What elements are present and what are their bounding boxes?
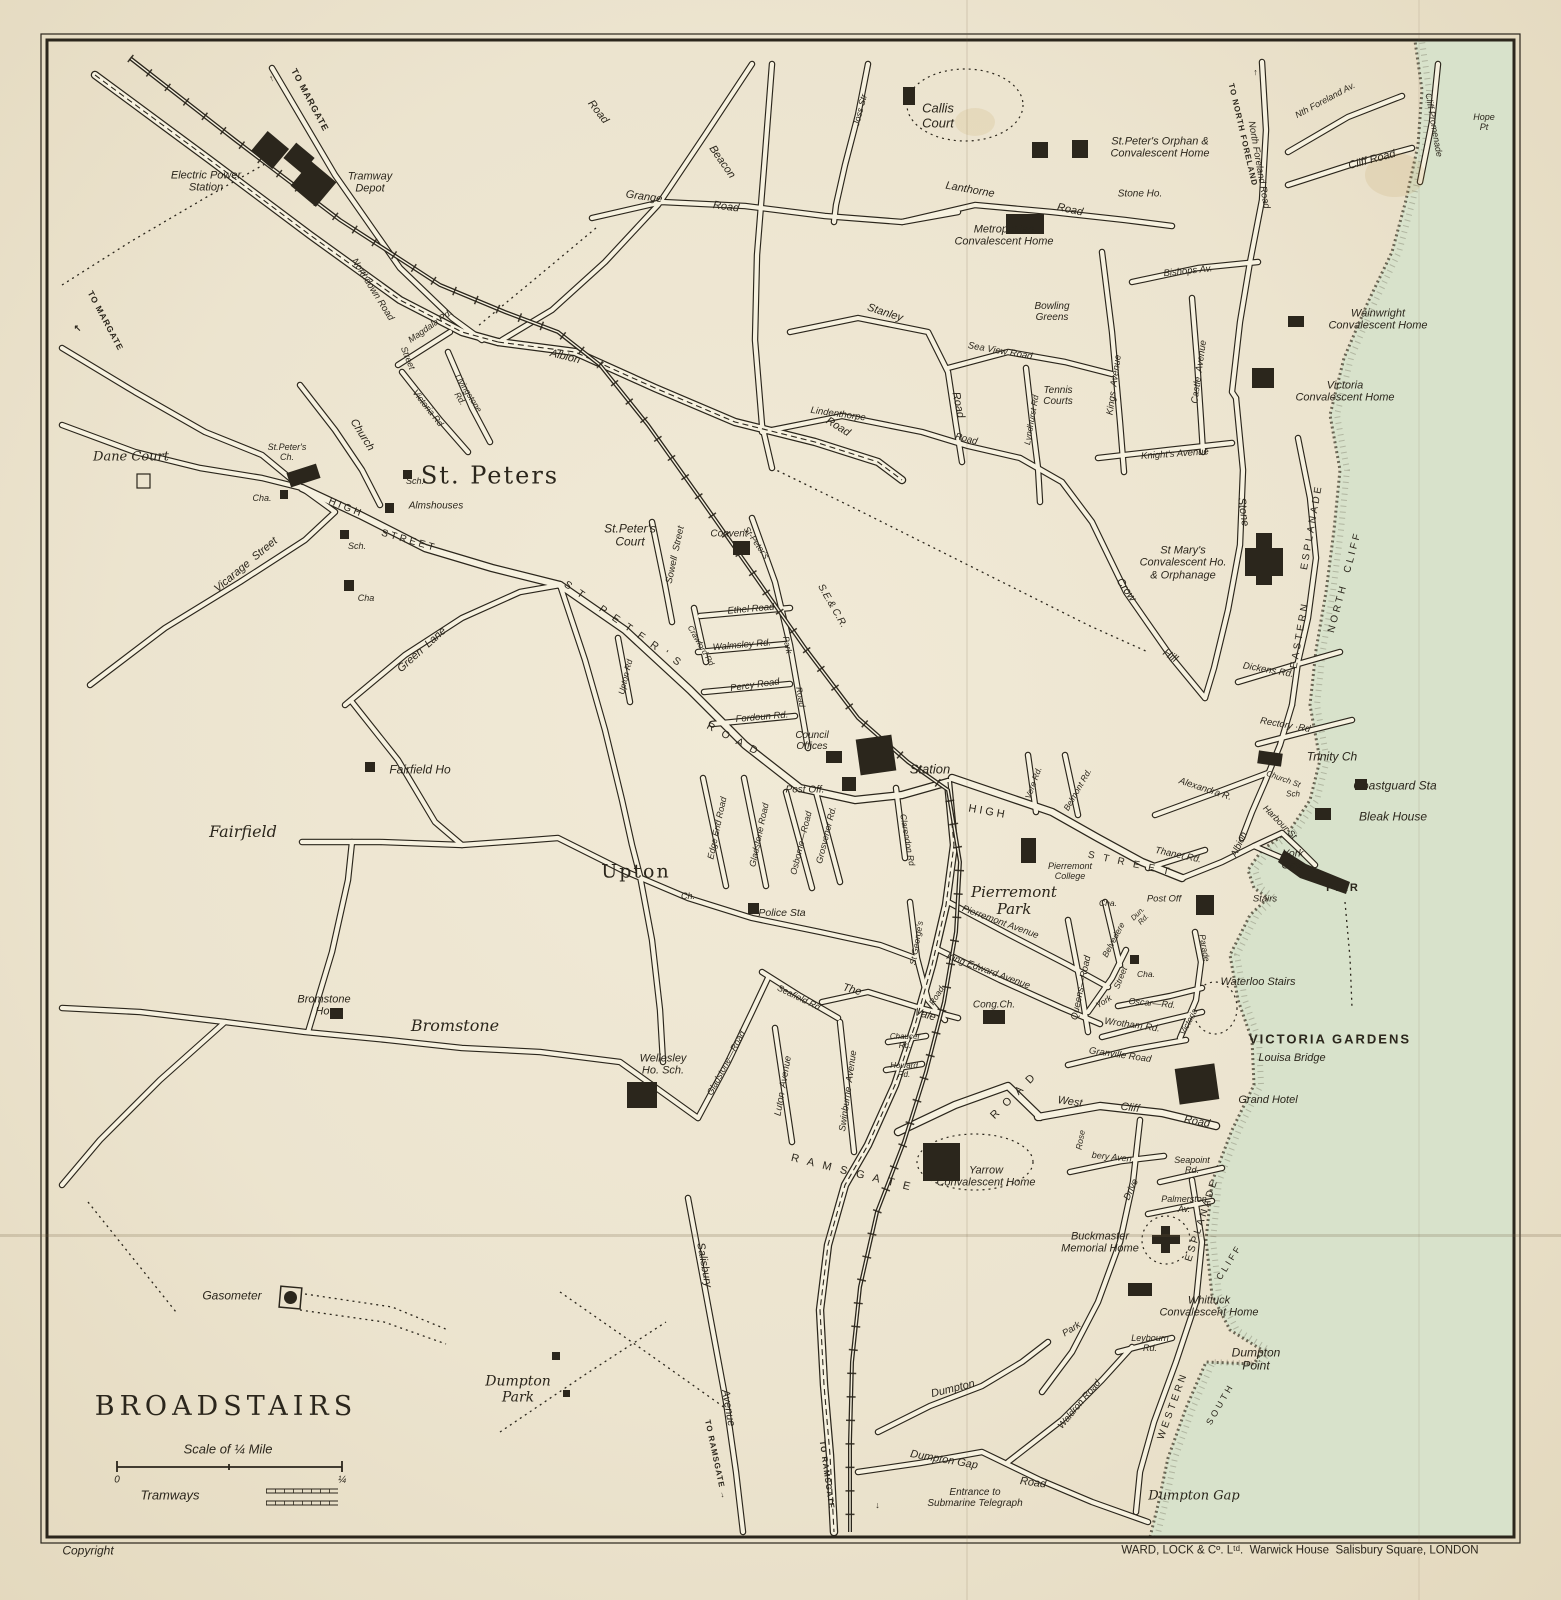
label-beacon: Beacon: [706, 143, 737, 181]
label-albion: Albion: [1230, 831, 1251, 859]
label-victoria: Victoria: [1178, 1007, 1200, 1036]
label-grange: Grange: [625, 188, 663, 205]
label-knight-s-avenue: Knight's Avenue: [1141, 447, 1209, 462]
label-stone-ho: Stone Ho.: [1118, 188, 1162, 199]
label-albion: Albion: [549, 347, 582, 366]
label-church: Church: [347, 417, 376, 454]
label-to-ramsgate: TO RAMSGATE: [817, 1440, 836, 1510]
label-hill: Hill: [1160, 647, 1180, 666]
label-west: West: [1057, 1094, 1083, 1110]
label-queens-road: Queens—Road: [1070, 955, 1094, 1021]
label-whittuck-convalescent-home: Whittuck Convalescent Home: [1159, 1295, 1258, 1320]
label-bishops-av: Bishops Av.: [1163, 264, 1213, 280]
label-street: Street: [399, 345, 417, 371]
label-: ↑: [1253, 67, 1259, 77]
label-lanthorne: Lanthorne: [945, 180, 996, 201]
label-upton: Upton: [601, 861, 671, 882]
label-leybourn-rd: Leybourn Rd.: [1131, 1333, 1169, 1353]
label-police-sta: Police Sta: [758, 908, 805, 920]
label-yarrow-convalescent-home: Yarrow Convalescent Home: [936, 1165, 1035, 1190]
label-: ↑: [268, 72, 277, 83]
label-south: SOUTH: [1204, 1381, 1236, 1426]
label-livingstone-rd: Livingstone Rd.: [445, 373, 484, 420]
label-pier: PIER: [1326, 882, 1360, 894]
label-swinburne-avenue: Swinburne Avenue: [838, 1050, 860, 1133]
label-cliff-promenade: Cliff Promenade: [1423, 92, 1444, 157]
label-broadstairs: BROADSTAIRS: [95, 1392, 357, 1422]
label-thanet-rd: Thanet Rd.: [1154, 846, 1202, 866]
label-road: Road: [954, 432, 979, 448]
label-north-cliff: NORTH CLIFF: [1326, 530, 1364, 634]
label-rectory-rd: Rectory ·Rd: [1259, 716, 1311, 735]
label-almshouses: Almshouses: [409, 500, 463, 511]
label-percy-road: Percy Road: [730, 677, 781, 694]
label-avenue: Avenue: [719, 1389, 738, 1428]
label-fairfield: Fairfield: [209, 823, 277, 841]
label-scale-of-mile: Scale of ¼ Mile: [184, 1443, 273, 1458]
label-walmsley-rd: Walmsley Rd.: [712, 638, 771, 654]
label-dumpton-park: Dumpton Park: [485, 1374, 551, 1405]
map-sheet: ↑TO MARGATEElectric Power StationTramway…: [0, 0, 1561, 1600]
label-r-o-a-d: R O A D: [988, 1070, 1040, 1122]
label-grand-hotel: Grand Hotel: [1238, 1094, 1297, 1106]
label-vicarage-street: Vicarage Street: [212, 535, 280, 595]
label-road: Road: [928, 985, 947, 1007]
label-ch: Ch.: [681, 891, 695, 901]
label-ethel-road: Ethel Road: [727, 603, 775, 618]
label-dumpton: Dumpton: [930, 1378, 976, 1401]
label-grosvenor-rd: Grosvenor Rd.: [814, 805, 838, 864]
label-ward-lock-c-l-warwick-house-salisbury-square-london: WARD, LOCK & Cº. Lᵗᵈ. Warwick House Sali…: [1121, 1545, 1478, 1558]
label-high: HIGH: [327, 496, 365, 520]
label-cha: Cha.: [1099, 899, 1117, 909]
label-tramways: Tramways: [141, 1489, 200, 1504]
label-harbour-st: Harbour St: [1261, 803, 1299, 841]
label-street: Street: [1112, 966, 1129, 991]
label-road: Road: [1056, 201, 1084, 219]
label-vere-rd: Vere Rd.: [1024, 766, 1044, 800]
label-tramway-depot: Tramway Depot: [348, 171, 392, 196]
label-r-a-m-s-g-a-t-e: R A M S G A T E: [790, 1152, 915, 1194]
label-chaucer-rd: Chaucer Rd.: [890, 1033, 920, 1051]
label-trinity-ch: Trinity Ch: [1307, 750, 1357, 763]
label-bromstone: Bromstone: [411, 1017, 499, 1035]
label-nth-foreland-av: Nth Foreland Av.: [1293, 80, 1356, 120]
label-sch: Sch: [1286, 791, 1300, 800]
label-st-peter-s-orphan-convalescent-home: St.Peter's Orphan & Convalescent Home: [1110, 136, 1209, 161]
label-esplanade: ESPLANADE: [1299, 483, 1325, 571]
label-dickens-rd: Dickens Rd.: [1242, 661, 1294, 680]
label-dumpton-point: Dumpton Point: [1232, 1347, 1281, 1374]
label-buckmaster-memorial-home: Buckmaster Memorial Home: [1061, 1231, 1139, 1256]
label-louisa-bridge: Louisa Bridge: [1258, 1052, 1325, 1064]
label-cliff-road: Cliff Road: [1347, 148, 1397, 172]
label-upton-rd: Upton Rd: [617, 658, 635, 695]
label-: ↖: [74, 323, 83, 333]
label-bleak-house: Bleak House: [1359, 810, 1427, 823]
label-joss-str: Joss Str: [851, 93, 869, 127]
label-cha: Cha.: [1137, 970, 1155, 980]
map-labels: ↑TO MARGATEElectric Power StationTramway…: [0, 0, 1561, 1600]
label-bowling-greens: Bowling Greens: [1034, 301, 1069, 323]
label-coastguard-sta: Coastguard Sta: [1353, 779, 1436, 792]
label-cha: Cha.: [252, 493, 271, 503]
label-s-e-c-r: S.E.& C.R.: [815, 582, 849, 629]
label-waterloo-stairs: Waterloo Stairs: [1221, 976, 1296, 988]
label-crow: Crow: [1114, 576, 1139, 604]
label-drive: Drive: [1123, 1178, 1142, 1203]
label-cliff: CLIFF: [1214, 1242, 1244, 1281]
label-r-o-a-d: R O A D: [704, 721, 762, 759]
label-0: 0: [114, 1474, 120, 1485]
label-sowell-street: Sowell Street: [665, 525, 688, 585]
label-to-ramsgate: TO RAMSGATE →: [702, 1419, 728, 1501]
label-bery-aven: bery Aven.: [1091, 1150, 1134, 1164]
label-road: Road: [1019, 1475, 1047, 1491]
label-seapoint-rd: Seapoint Rd.: [1174, 1155, 1210, 1175]
label-parade: Parade: [1197, 934, 1211, 963]
label-rose: Rose: [1075, 1129, 1088, 1150]
label-metropolitan-convalescent-home: Metropolitan Convalescent Home: [954, 224, 1053, 249]
label-green-lane: Green Lane: [395, 625, 449, 675]
label-alexandra-r: Alexandra R.: [1177, 776, 1233, 803]
label-copyright: Copyright: [62, 1544, 113, 1557]
label-st-mary-s-convalescent-ho-orphanage: St Mary's Convalescent Ho. & Orphanage: [1140, 545, 1227, 582]
label-wrotham-rd: Wrotham Rd.: [1104, 1017, 1161, 1035]
label-post-off: Post Off.: [786, 784, 825, 795]
label-esplanade: ESPLANADE: [1183, 1177, 1221, 1263]
label-victoria-rd: Victoria Rd: [411, 388, 446, 429]
label-electric-power-station: Electric Power Station: [171, 170, 241, 195]
label-victoria-convalescent-home: Victoria Convalescent Home: [1295, 380, 1394, 405]
label-cliff: Cliff: [1120, 1101, 1140, 1116]
label-stanley: Stanley: [866, 301, 905, 324]
label-church-st: Church St: [1265, 770, 1301, 791]
label-edge-end-road: Edge End Road: [705, 796, 728, 860]
label-cong-ch: Cong.Ch.: [973, 999, 1015, 1010]
label-vale: Vale: [913, 1006, 937, 1024]
label-st-peters: St. Peters: [421, 463, 559, 490]
label-crawford-rd: Crawford Rd: [685, 624, 715, 667]
label-belmont-rd: Belmont Rd.: [1062, 767, 1094, 812]
label-osborne-road: Osborne—Road: [788, 810, 814, 876]
label-stairs: Stairs: [1253, 895, 1277, 906]
label-wellesley-ho-sch: Wellesley Ho. Sch.: [640, 1053, 687, 1078]
label-the: The: [841, 981, 863, 998]
label-waldron-road: Waldron Road: [1056, 1378, 1103, 1431]
label-northdown-road: Northdown Road: [349, 257, 396, 323]
label-road: Road: [1183, 1114, 1211, 1131]
label-road: Road: [949, 391, 967, 419]
label-: ↓: [875, 1500, 881, 1510]
label-st-george-s: St George's: [908, 920, 925, 966]
label-york: York: [1094, 993, 1113, 1010]
label-gladstone-road: Gladstone Road: [747, 802, 770, 868]
label-park: Park: [1061, 1320, 1083, 1339]
label-road: Road: [585, 98, 611, 126]
label-council-offices: Council Offices: [795, 730, 828, 752]
label-: ¼: [338, 1474, 346, 1485]
label-st-peter-s-court: St.Peter's Court: [604, 523, 656, 550]
label-bromstone-ho: Bromstone Ho.: [297, 994, 350, 1019]
label-s-t-p-e-t-e-r-s: S T P E T E R ' S: [561, 579, 685, 670]
label-magdala-rd: Magdala Rd.: [406, 307, 454, 345]
label-clarendon-rd: Clarendon Rd: [898, 813, 916, 866]
label-high: HIGH: [967, 803, 1008, 822]
label-fairfield-ho: Fairfield Ho: [389, 763, 450, 776]
label-howard-rd: Howard Rd.: [890, 1062, 918, 1080]
label-tennis-courts: Tennis Courts: [1043, 385, 1072, 407]
label-victoria-gardens: VICTORIA GARDENS: [1249, 1033, 1411, 1048]
label-dumpton-gap: Dumpton Gap: [909, 1448, 979, 1472]
label-dumpton-gap: Dumpton Gap: [1148, 1490, 1239, 1505]
label-cha: Cha: [358, 593, 375, 603]
label-dane-court: Dane Court: [93, 451, 169, 466]
label-western: WESTERN: [1156, 1371, 1191, 1442]
label-to-margate: TO MARGATE: [289, 67, 331, 133]
label-fordoun-rd: Fordoun Rd.: [735, 710, 789, 725]
label-wainwright-convalescent-home: Wainwright Convalescent Home: [1328, 308, 1427, 333]
label-road: Road: [794, 686, 807, 708]
label-luton-avenue: Luton Avenue: [773, 1055, 794, 1117]
label-york-gate: York Gate: [1282, 848, 1305, 872]
label-station: Station: [910, 763, 950, 778]
label-st-peter-s: St-Peter's: [741, 525, 770, 561]
label-gladstone-road: Gladstone—Road: [705, 1029, 747, 1097]
label-pierremont-college: Pierremont College: [1048, 861, 1092, 881]
label-sea-view-road: Sea View Road: [967, 341, 1033, 363]
label-stone: Stone: [1235, 497, 1251, 527]
label-castle-avenue: Castle Avenue: [1190, 340, 1209, 405]
label-post-off: Post Off: [1147, 895, 1181, 906]
label-king-edward-avenue: King Edward Avenue: [945, 952, 1032, 992]
label-road: Road: [712, 199, 740, 215]
label-street: STREET: [380, 528, 438, 555]
label-salisbury: Salisbury: [694, 1242, 714, 1289]
label-belvedere: Belvedere: [1101, 921, 1127, 959]
label-st-peter-s-ch: St.Peter's Ch.: [268, 442, 307, 462]
label-hope-pt: Hope Pt: [1473, 112, 1495, 132]
label-gasometer: Gasometer: [202, 1289, 261, 1302]
label-seafield-rd: Seafield Rd.: [776, 983, 824, 1014]
label-to-margate: TO MARGATE: [85, 289, 125, 352]
label-lyndhurst-rd: Lyndhurst Rd: [1023, 394, 1041, 445]
label-dun-rd: Dun. Rd.: [1129, 905, 1152, 928]
label-sch: Sch.: [348, 541, 366, 551]
label-eastern: EASTERN: [1289, 600, 1312, 669]
label-kings-avenue: Kings Avenue: [1106, 354, 1125, 416]
label-oscar-rd: Oscar—Rd.: [1128, 996, 1176, 1010]
label-park: Park: [781, 635, 794, 654]
label-granville-road: Granville Road: [1088, 1046, 1152, 1065]
label-callis-court: Callis Court: [922, 101, 954, 130]
label-entrance-to-submarine-telegraph: Entrance to Submarine Telegraph: [927, 1487, 1022, 1509]
